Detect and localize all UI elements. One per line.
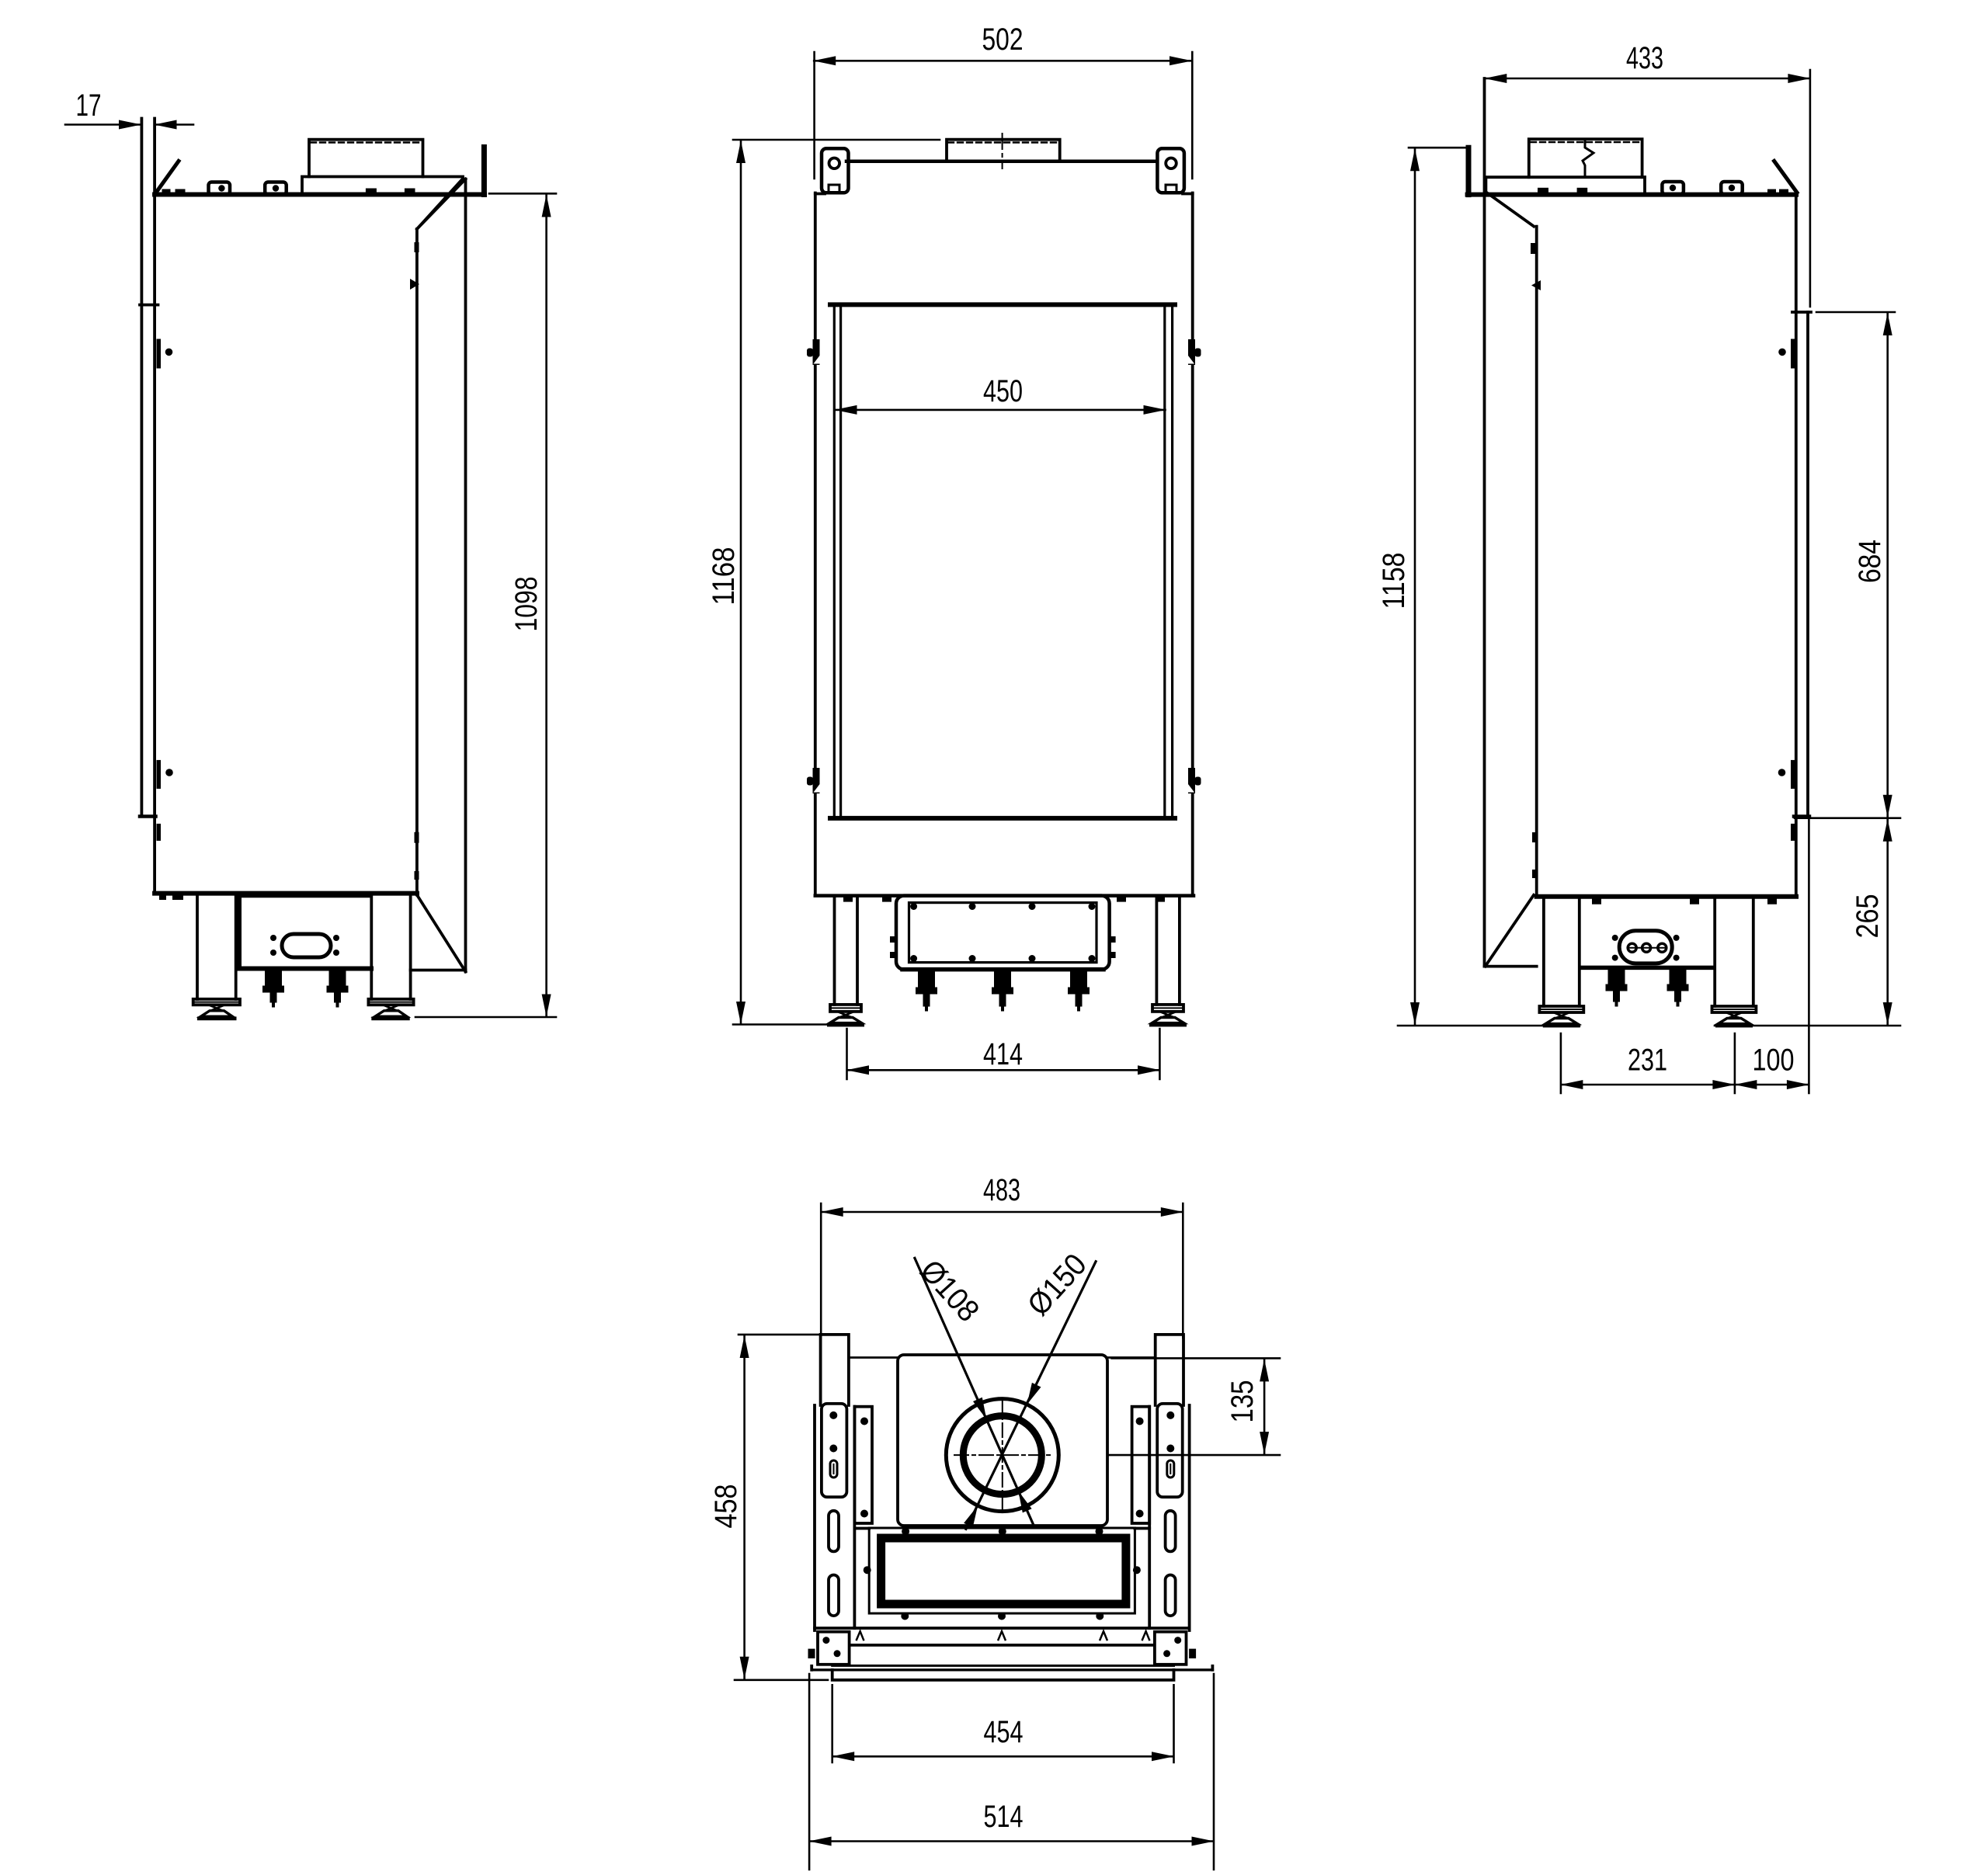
svg-text:1168: 1168 — [707, 547, 741, 606]
svg-text:231: 231 — [1628, 1043, 1667, 1078]
svg-text:100: 100 — [1753, 1043, 1795, 1078]
svg-text:684: 684 — [1853, 540, 1887, 583]
svg-text:414: 414 — [983, 1037, 1023, 1071]
svg-text:502: 502 — [982, 23, 1024, 57]
svg-text:1158: 1158 — [1377, 553, 1411, 609]
svg-text:265: 265 — [1851, 894, 1885, 939]
svg-text:450: 450 — [983, 374, 1023, 408]
svg-text:483: 483 — [983, 1173, 1020, 1207]
svg-text:458: 458 — [709, 1484, 743, 1529]
svg-text:433: 433 — [1626, 41, 1663, 75]
svg-text:1098: 1098 — [509, 577, 544, 632]
svg-text:135: 135 — [1225, 1380, 1260, 1423]
svg-text:454: 454 — [984, 1715, 1024, 1749]
svg-text:514: 514 — [984, 1800, 1024, 1834]
svg-text:17: 17 — [76, 89, 102, 123]
